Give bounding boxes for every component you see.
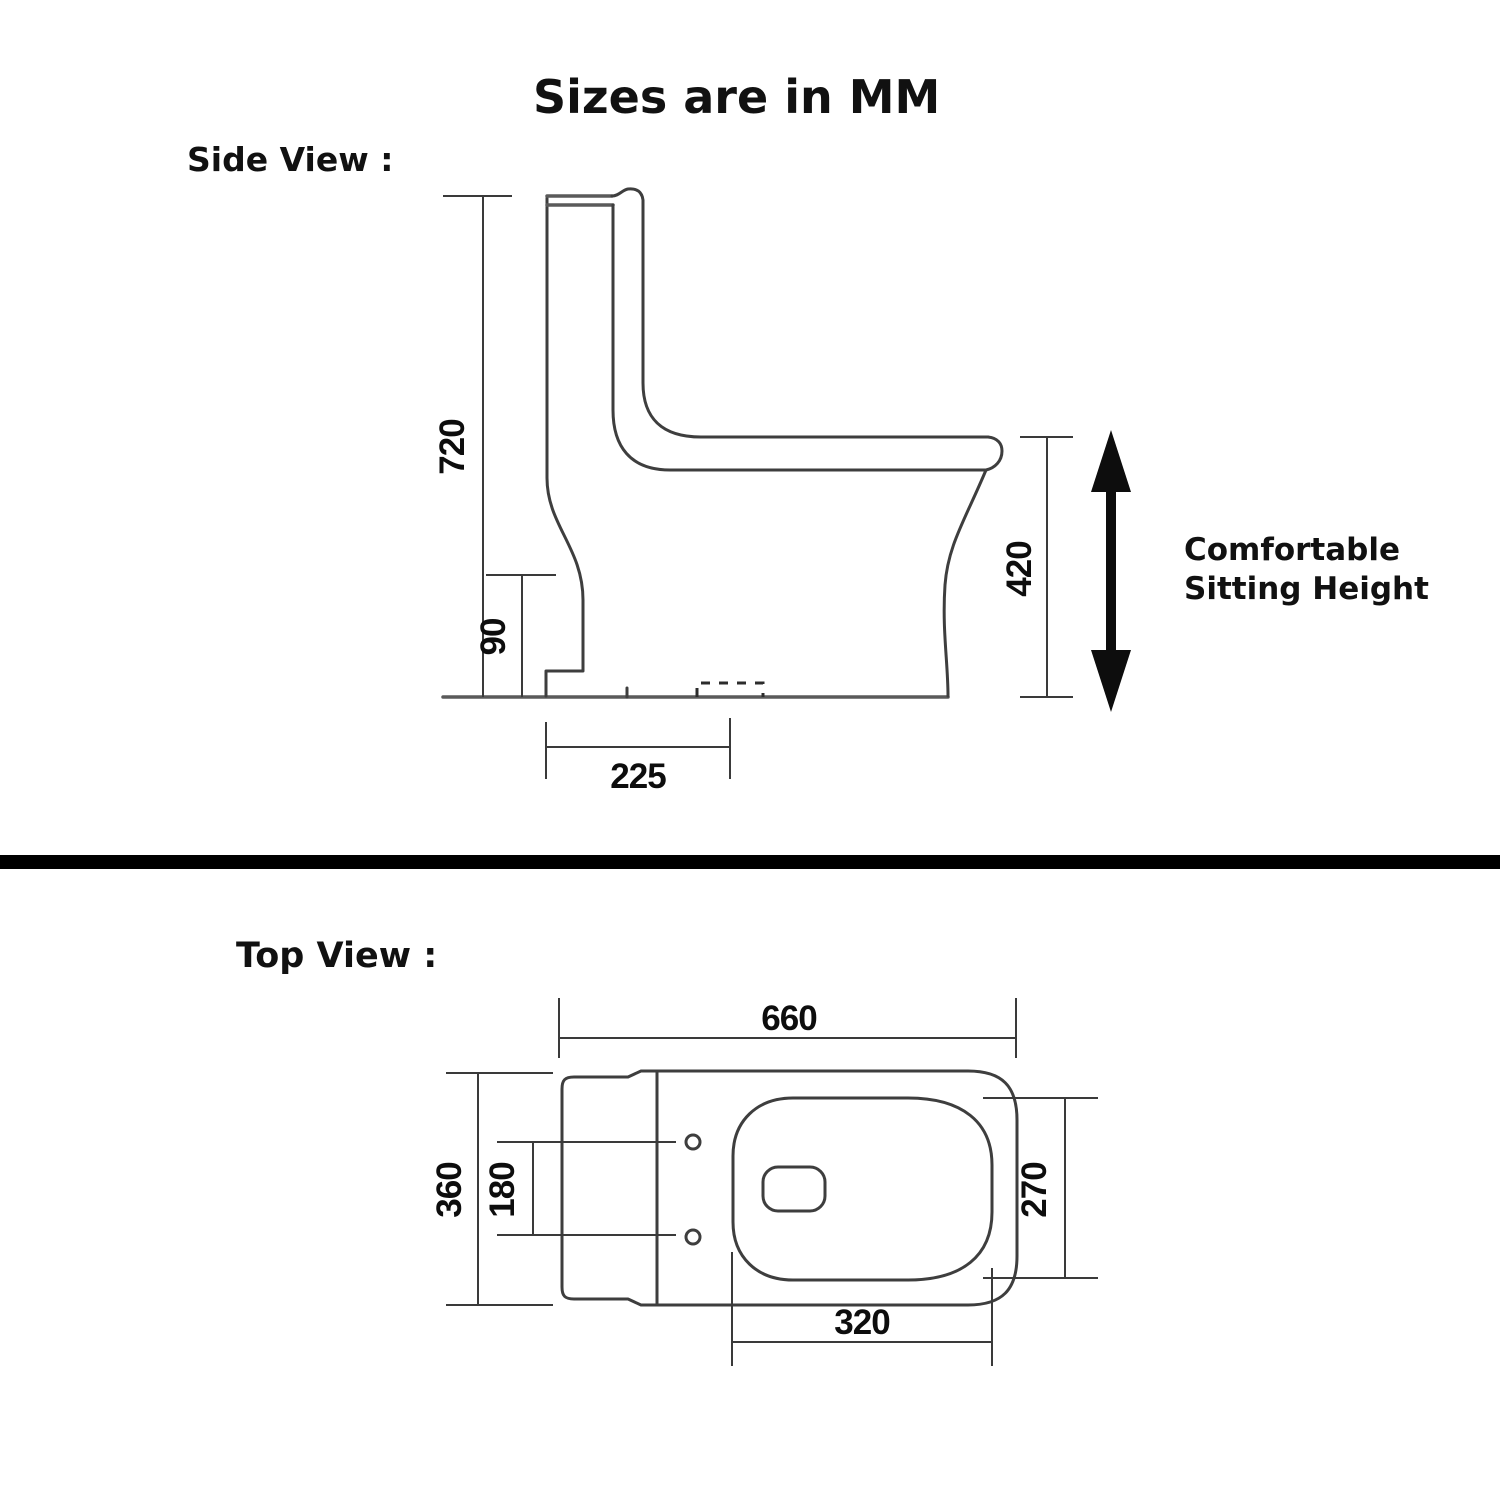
bolt-hole-bottom <box>686 1230 700 1244</box>
tank-front-outer-seat-top <box>612 189 988 437</box>
seat-inner-ring <box>733 1098 992 1280</box>
double-arrow-icon <box>1091 430 1131 712</box>
double-arrow-head-up <box>1091 430 1131 492</box>
flush-hole <box>763 1167 825 1211</box>
tank-rear-and-pedestal <box>546 198 583 696</box>
dim-660-value: 660 <box>761 999 817 1038</box>
dim-bolt-spacing: 180 <box>483 1142 676 1235</box>
diagram-svg: 720 90 225 420 <box>0 0 1500 1500</box>
dim-90-value: 90 <box>474 618 513 655</box>
trap-outlet-dashed <box>697 683 763 697</box>
dim-225-value: 225 <box>610 757 666 796</box>
double-arrow-head-down <box>1091 650 1131 712</box>
dim-outlet-offset: 225 <box>546 718 730 796</box>
toilet-top-outline <box>562 1071 1017 1305</box>
seat-nose <box>986 437 1002 470</box>
dim-180-value: 180 <box>483 1162 522 1218</box>
dim-seat-length: 320 <box>732 1252 992 1366</box>
top-view-drawing: 660 360 180 270 <box>430 998 1098 1366</box>
dim-270-value: 270 <box>1015 1162 1054 1218</box>
dim-seat-width: 270 <box>983 1098 1098 1278</box>
dim-sitting-height: 420 <box>1000 437 1073 697</box>
dim-total-length: 660 <box>559 998 1016 1058</box>
dimension-diagram: Sizes are in MM Side View : Top View : C… <box>0 0 1500 1500</box>
bowl-front-curve <box>944 470 986 696</box>
toilet-side-outline <box>443 189 1002 697</box>
bolt-hole-top <box>686 1135 700 1149</box>
body-outline <box>562 1071 1017 1305</box>
side-view-drawing: 720 90 225 420 <box>433 189 1131 796</box>
dim-720-value: 720 <box>433 419 472 475</box>
dim-trap-height: 90 <box>474 575 556 697</box>
dim-420-value: 420 <box>1000 541 1039 597</box>
dim-320-value: 320 <box>834 1303 890 1342</box>
dim-360-value: 360 <box>430 1162 469 1218</box>
